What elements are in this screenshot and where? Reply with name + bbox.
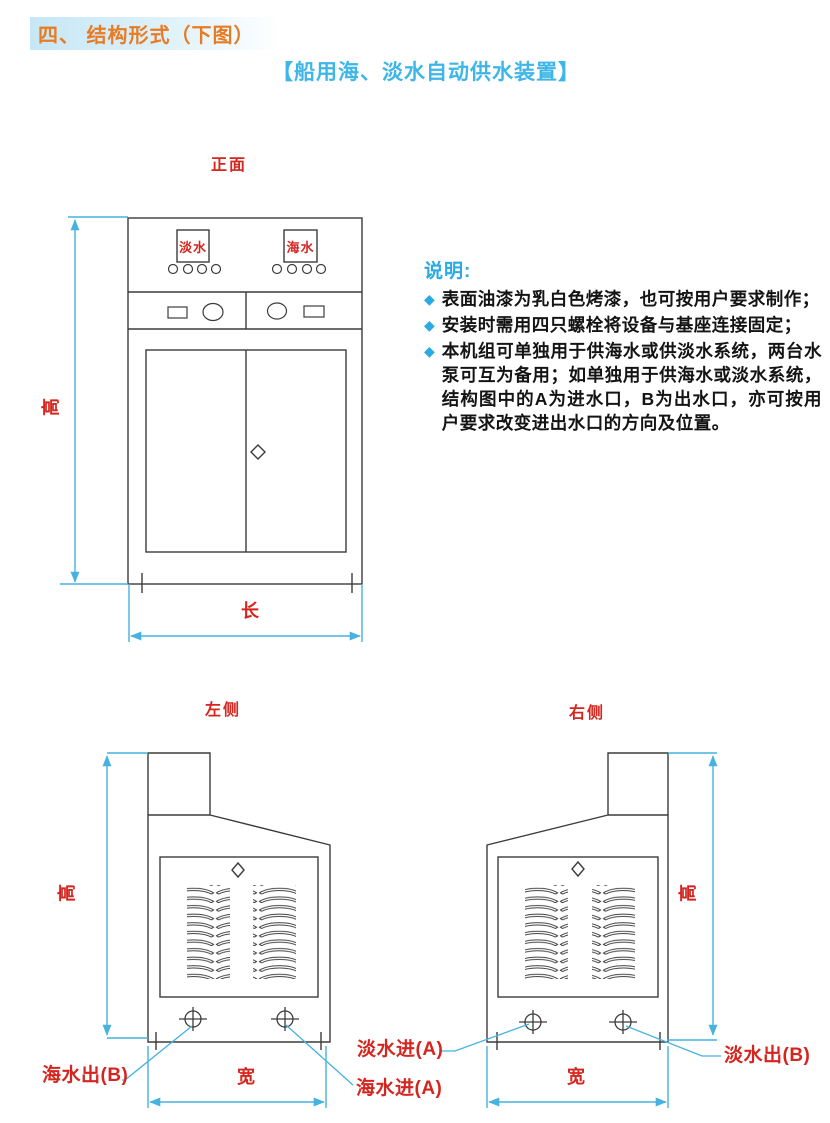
indicator-light — [198, 265, 207, 274]
switch-button — [304, 306, 324, 317]
front-view-dimensions — [60, 217, 362, 642]
right-view-outline — [487, 753, 668, 1050]
front-length-label: 长 — [241, 602, 259, 620]
indicator-light — [303, 265, 312, 274]
indicator-light — [169, 265, 178, 274]
fresh-water-outlet-label: 淡水出(B) — [724, 1046, 810, 1065]
indicator-light — [184, 265, 193, 274]
sea-water-display-label: 海水 — [284, 230, 317, 262]
drawing-canvas — [0, 0, 830, 1123]
left-view-outline — [148, 753, 330, 1050]
knob — [203, 304, 223, 321]
left-width-label: 宽 — [237, 1068, 255, 1086]
front-height-label: 高 — [42, 398, 60, 416]
right-width-label: 宽 — [567, 1068, 585, 1086]
side-body — [487, 753, 668, 1042]
switch-button — [168, 307, 187, 318]
door-handle-icon — [572, 862, 584, 876]
door-handle-icon — [251, 445, 265, 459]
pipe-connection-icon — [179, 1007, 207, 1031]
leader-sea-out — [122, 1026, 192, 1080]
indicator-light — [288, 265, 297, 274]
leader-sea-in — [286, 1025, 353, 1085]
left-view-title: 左侧 — [205, 703, 241, 719]
side-body — [148, 753, 330, 1042]
fresh-water-inlet-label: 淡水进(A) — [357, 1040, 443, 1059]
leader-fresh-out — [626, 1026, 721, 1056]
pipe-connection-icon — [609, 1010, 637, 1034]
indicator-light — [273, 265, 282, 274]
fresh-water-display-label: 淡水 — [177, 230, 209, 262]
sea-water-inlet-label: 海水进(A) — [356, 1079, 442, 1098]
louver-vent — [187, 885, 230, 979]
front-view-outline — [128, 218, 362, 593]
sea-water-outlet-label: 海水出(B) — [42, 1066, 128, 1085]
door-handle-icon — [232, 863, 244, 877]
cabinet-body — [128, 218, 362, 584]
indicator-light — [317, 265, 326, 274]
leader-fresh-in — [441, 1024, 529, 1051]
louver-vent — [525, 885, 568, 979]
right-height-label: 高 — [679, 884, 697, 902]
left-height-label: 高 — [58, 884, 76, 902]
right-view-title: 右侧 — [569, 706, 605, 722]
front-view-title: 正面 — [211, 158, 247, 174]
indicator-light — [212, 265, 221, 274]
pipe-connection-icon — [271, 1007, 299, 1031]
louver-vent — [592, 885, 635, 979]
knob — [268, 303, 287, 319]
document-page: 四、 结构形式（下图） 【船用海、淡水自动供水装置】 说明: ◆ 表面油漆为乳白… — [0, 0, 830, 1123]
louver-vent — [253, 885, 296, 979]
pipe-connection-icon — [519, 1010, 547, 1034]
